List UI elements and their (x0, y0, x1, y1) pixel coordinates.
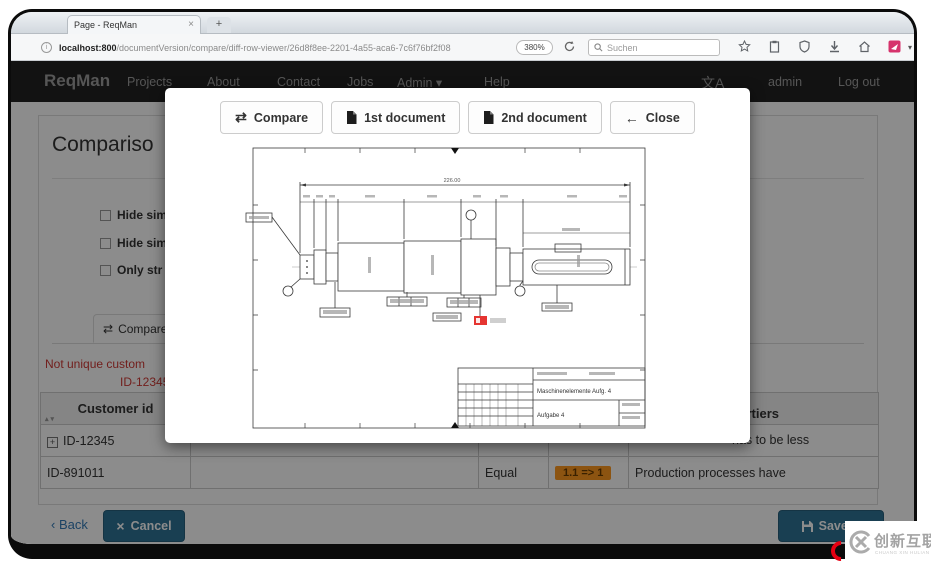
diff-highlight-marker (474, 316, 487, 325)
shield-icon[interactable] (798, 40, 811, 53)
browser-window: Page - ReqMan × + i localhost:800/docume… (8, 9, 917, 559)
modal-toolbar: ⇄ Compare 1st document 2nd document ← Cl… (165, 101, 750, 134)
modal-compare-button[interactable]: ⇄ Compare (220, 101, 323, 134)
document-viewer-modal: ⇄ Compare 1st document 2nd document ← Cl… (165, 88, 750, 443)
first-document-button[interactable]: 1st document (331, 101, 460, 134)
title-block-line1: Maschinenelemente Aufg. 4 (537, 389, 612, 395)
tab-title: Page - ReqMan (74, 20, 137, 30)
watermark-logo-icon (848, 530, 872, 554)
document-icon (483, 111, 494, 124)
search-placeholder: Suchen (607, 43, 638, 53)
arrow-left-icon: ← (625, 110, 639, 126)
tab-close-icon[interactable]: × (188, 20, 194, 30)
modal-close-button[interactable]: ← Close (610, 101, 695, 134)
screenshot-extension-icon[interactable] (888, 40, 901, 53)
document-icon (346, 111, 357, 124)
technical-drawing: 226.00 Maschinenelemente Aufg. 4 Aufgabe… (237, 145, 680, 432)
clipboard-icon[interactable] (768, 40, 781, 53)
browser-tab[interactable]: Page - ReqMan × (67, 15, 201, 34)
browser-toolbar: i localhost:800/documentVersion/compare/… (11, 34, 914, 61)
search-icon (594, 43, 603, 52)
zoom-level-badge[interactable]: 380% (516, 40, 553, 55)
reload-icon[interactable] (563, 40, 576, 53)
watermark: 创新互联 CHUANG XIN HULIAN (845, 521, 931, 566)
new-tab-button[interactable]: + (207, 17, 231, 33)
address-bar[interactable]: localhost:800/documentVersion/compare/di… (59, 43, 499, 53)
site-info-icon[interactable]: i (41, 42, 52, 53)
title-block-line2: Aufgabe 4 (537, 413, 565, 419)
home-icon[interactable] (858, 40, 871, 53)
browser-tab-strip: Page - ReqMan × + (11, 12, 914, 34)
overall-dimension-label: 226.00 (444, 178, 461, 184)
toolbar-overflow-caret[interactable]: ▾ (908, 43, 912, 52)
download-icon[interactable] (828, 40, 841, 53)
url-host: localhost:800 (59, 43, 117, 53)
compare-arrows-icon: ⇄ (235, 109, 247, 126)
bookmark-star-icon[interactable] (738, 40, 751, 53)
watermark-subtext: CHUANG XIN HULIAN (875, 550, 930, 555)
page-viewport: ReqMan Projects About Contact Jobs Admin… (11, 61, 914, 544)
search-input[interactable]: Suchen (588, 39, 720, 56)
url-path: /documentVersion/compare/diff-row-viewer… (117, 43, 451, 53)
watermark-text: 创新互联 (874, 530, 931, 551)
second-document-button[interactable]: 2nd document (468, 101, 601, 134)
